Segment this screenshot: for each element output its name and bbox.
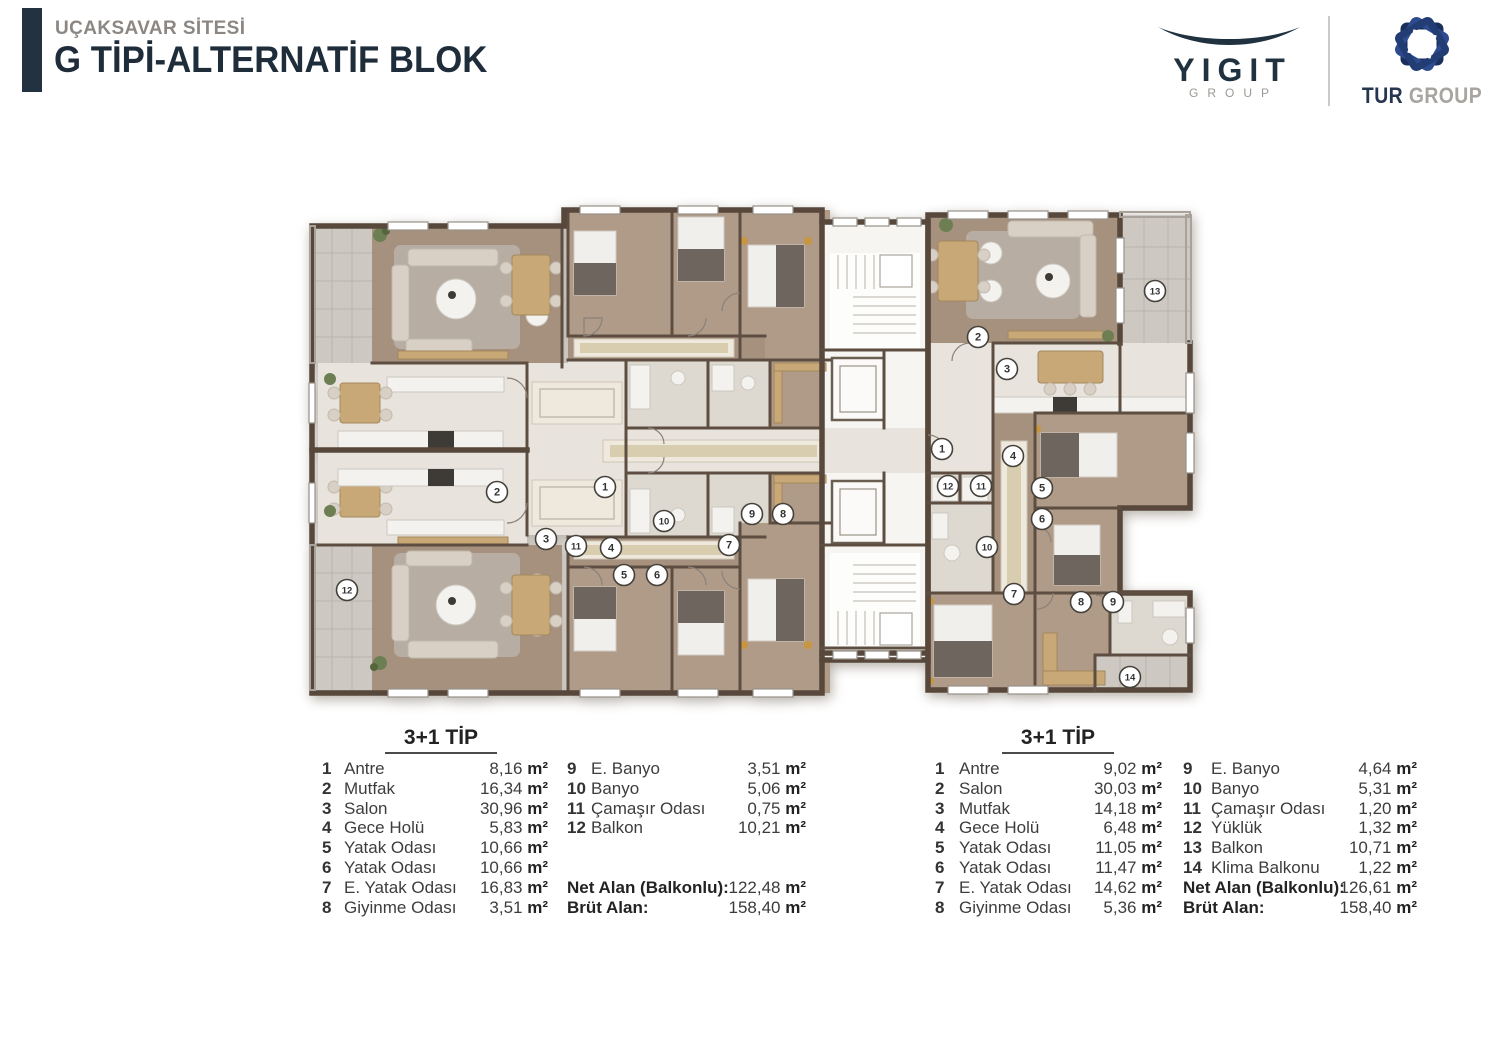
room-number: 5 [322,838,344,858]
logo-divider [1328,16,1330,106]
room-number: 1 [322,759,344,779]
room-name: Banyo [1211,779,1333,799]
room-area: 5,31 m² [1333,779,1417,799]
plan-marker-number: 9 [1110,597,1116,609]
room-number: 2 [935,779,959,799]
room-area: 10,21 m² [706,818,806,838]
yigit-swoosh-icon [1154,24,1304,50]
room-area: 8,16 m² [459,759,548,779]
room-number: 13 [1183,838,1211,858]
room-area: 10,66 m² [459,858,548,878]
yigit-group-logo: YIGIT GROUP [1150,24,1308,100]
room-area: 30,96 m² [459,799,548,819]
plan-marker-number: 6 [1039,514,1045,526]
room-number: 3 [935,799,959,819]
table-column: 1Antre9,02 m²2Salon30,03 m²3Mutfak14,18 … [935,759,1162,917]
room-name: Salon [959,779,1079,799]
room-name: E. Banyo [591,759,706,779]
plan-marker-number: 11 [571,542,582,553]
plan-marker-number: 1 [602,482,608,494]
room-number: 4 [322,818,344,838]
room-name: Giyinme Odası [959,898,1079,918]
room-number: 7 [935,878,959,898]
room-name: Klima Balkonu [1211,858,1333,878]
plan-marker-number: 6 [654,570,660,582]
room-name: Gece Holü [959,818,1079,838]
plan-marker-number: 4 [608,543,615,555]
plan-marker-number: 2 [494,487,500,499]
room-number: 6 [935,858,959,878]
room-area: 1,32 m² [1333,818,1417,838]
room-name: E. Yatak Odası [959,878,1079,898]
room-area: 16,83 m² [459,878,548,898]
room-name: E. Yatak Odası [344,878,459,898]
total-area: 126,61 m² [1333,878,1417,898]
tur-group-logo: TUR GROUP [1352,12,1492,109]
room-area: 5,36 m² [1079,898,1162,918]
page: UÇAKSAVAR SİTESİ G TİPİ-ALTERNATİF BLOK … [0,0,1500,1061]
room-area: 3,51 m² [459,898,548,918]
total-label: Brüt Alan: [567,898,706,918]
room-number: 12 [567,818,591,838]
plan-marker-number: 5 [1039,483,1045,495]
room-area: 10,66 m² [459,838,548,858]
total-label: Brüt Alan: [1183,898,1333,918]
room-area: 10,71 m² [1333,838,1417,858]
room-area: 14,62 m² [1079,878,1162,898]
plan-marker-number: 7 [1011,589,1017,601]
tur-logo-subtext: GROUP [1409,83,1482,108]
room-name: Balkon [591,818,706,838]
plan-marker-number: 12 [342,586,353,597]
table-column: 9E. Banyo4,64 m²10Banyo5,31 m²11Çamaşır … [1183,759,1417,917]
room-number: 3 [322,799,344,819]
room-number: 8 [322,898,344,918]
plan-marker-number: 3 [1004,364,1010,376]
total-area: 158,40 m² [706,898,806,918]
area-table-left: 3+1 TİP 1Antre8,16 m²2Mutfak16,34 m²3Sal… [315,726,835,759]
yigit-logo-text: YIGIT [1157,55,1308,85]
room-name: Salon [344,799,459,819]
plan-marker-number: 3 [543,534,549,546]
room-area: 0,75 m² [706,799,806,819]
table-column: 1Antre8,16 m²2Mutfak16,34 m²3Salon30,96 … [322,759,548,917]
room-number: 7 [322,878,344,898]
room-name: Yatak Odası [344,858,459,878]
room-name: Yatak Odası [959,858,1079,878]
floor-plan-image: .wood{fill:#a6917e}.wood2{fill:#b09b88}.… [308,193,1198,703]
floor-plan: .wood{fill:#a6917e}.wood2{fill:#b09b88}.… [308,193,1198,703]
room-area: 11,05 m² [1079,838,1162,858]
room-number: 9 [567,759,591,779]
room-name: Antre [959,759,1079,779]
room-name: Antre [344,759,459,779]
table-title: 3+1 TİP [1002,726,1114,754]
room-area: 16,34 m² [459,779,548,799]
yigit-logo-subtext: GROUP [1159,86,1308,100]
plan-marker-number: 12 [943,482,954,493]
room-area: 9,02 m² [1079,759,1162,779]
room-number: 10 [1183,779,1211,799]
room-number: 6 [322,858,344,878]
room-name: Mutfak [344,779,459,799]
room-area: 1,20 m² [1333,799,1417,819]
plan-marker-number: 4 [1010,451,1017,463]
room-name: Giyinme Odası [344,898,459,918]
room-name: Yatak Odası [344,838,459,858]
plan-marker-number: 10 [659,517,670,528]
plan-marker-number: 11 [976,482,987,493]
plan-marker-number: 8 [1078,597,1084,609]
room-name: Çamaşır Odası [1211,799,1333,819]
table-column: 9E. Banyo3,51 m²10Banyo5,06 m²11Çamaşır … [567,759,806,917]
room-number: 14 [1183,858,1211,878]
room-area: 6,48 m² [1079,818,1162,838]
room-name: Yatak Odası [959,838,1079,858]
room-area: 11,47 m² [1079,858,1162,878]
table-title: 3+1 TİP [385,726,497,754]
room-name: Balkon [1211,838,1333,858]
total-area: 122,48 m² [706,878,806,898]
tur-knot-icon [1390,12,1454,76]
plan-marker-number: 14 [1125,673,1136,684]
total-label: Net Alan (Balkonlu): [567,878,706,898]
room-number: 12 [1183,818,1211,838]
room-number: 1 [935,759,959,779]
total-label: Net Alan (Balkonlu): [1183,878,1333,898]
room-number: 4 [935,818,959,838]
room-name: Yüklük [1211,818,1333,838]
room-area: 5,83 m² [459,818,548,838]
room-area: 14,18 m² [1079,799,1162,819]
plan-marker-number: 10 [982,543,993,554]
room-number: 11 [567,799,591,819]
room-area: 30,03 m² [1079,779,1162,799]
room-number: 10 [567,779,591,799]
room-name: Gece Holü [344,818,459,838]
plan-marker-number: 2 [975,332,981,344]
tur-logo-name: TUR [1362,83,1403,108]
room-number: 2 [322,779,344,799]
plan-marker-number: 9 [749,509,755,521]
project-name: UÇAKSAVAR SİTESİ [55,18,245,40]
room-area: 4,64 m² [1333,759,1417,779]
page-title: G TİPİ-ALTERNATİF BLOK [54,39,487,81]
room-area: 3,51 m² [706,759,806,779]
plan-marker-number: 5 [621,570,627,582]
room-area: 5,06 m² [706,779,806,799]
total-area: 158,40 m² [1333,898,1417,918]
room-name: E. Banyo [1211,759,1333,779]
room-name: Çamaşır Odası [591,799,706,819]
room-number: 5 [935,838,959,858]
plan-marker-number: 13 [1150,287,1161,298]
title-accent-bar [22,8,42,92]
room-number: 9 [1183,759,1211,779]
plan-marker-number: 1 [939,444,945,456]
room-area: 1,22 m² [1333,858,1417,878]
room-number: 11 [1183,799,1211,819]
plan-marker-number: 7 [726,540,732,552]
area-table-right: 3+1 TİP 1Antre9,02 m²2Salon30,03 m²3Mutf… [930,726,1450,759]
room-number: 8 [935,898,959,918]
room-name: Mutfak [959,799,1079,819]
tur-logo-text: TUR GROUP [1360,83,1483,109]
room-name: Banyo [591,779,706,799]
plan-marker-number: 8 [780,509,786,521]
